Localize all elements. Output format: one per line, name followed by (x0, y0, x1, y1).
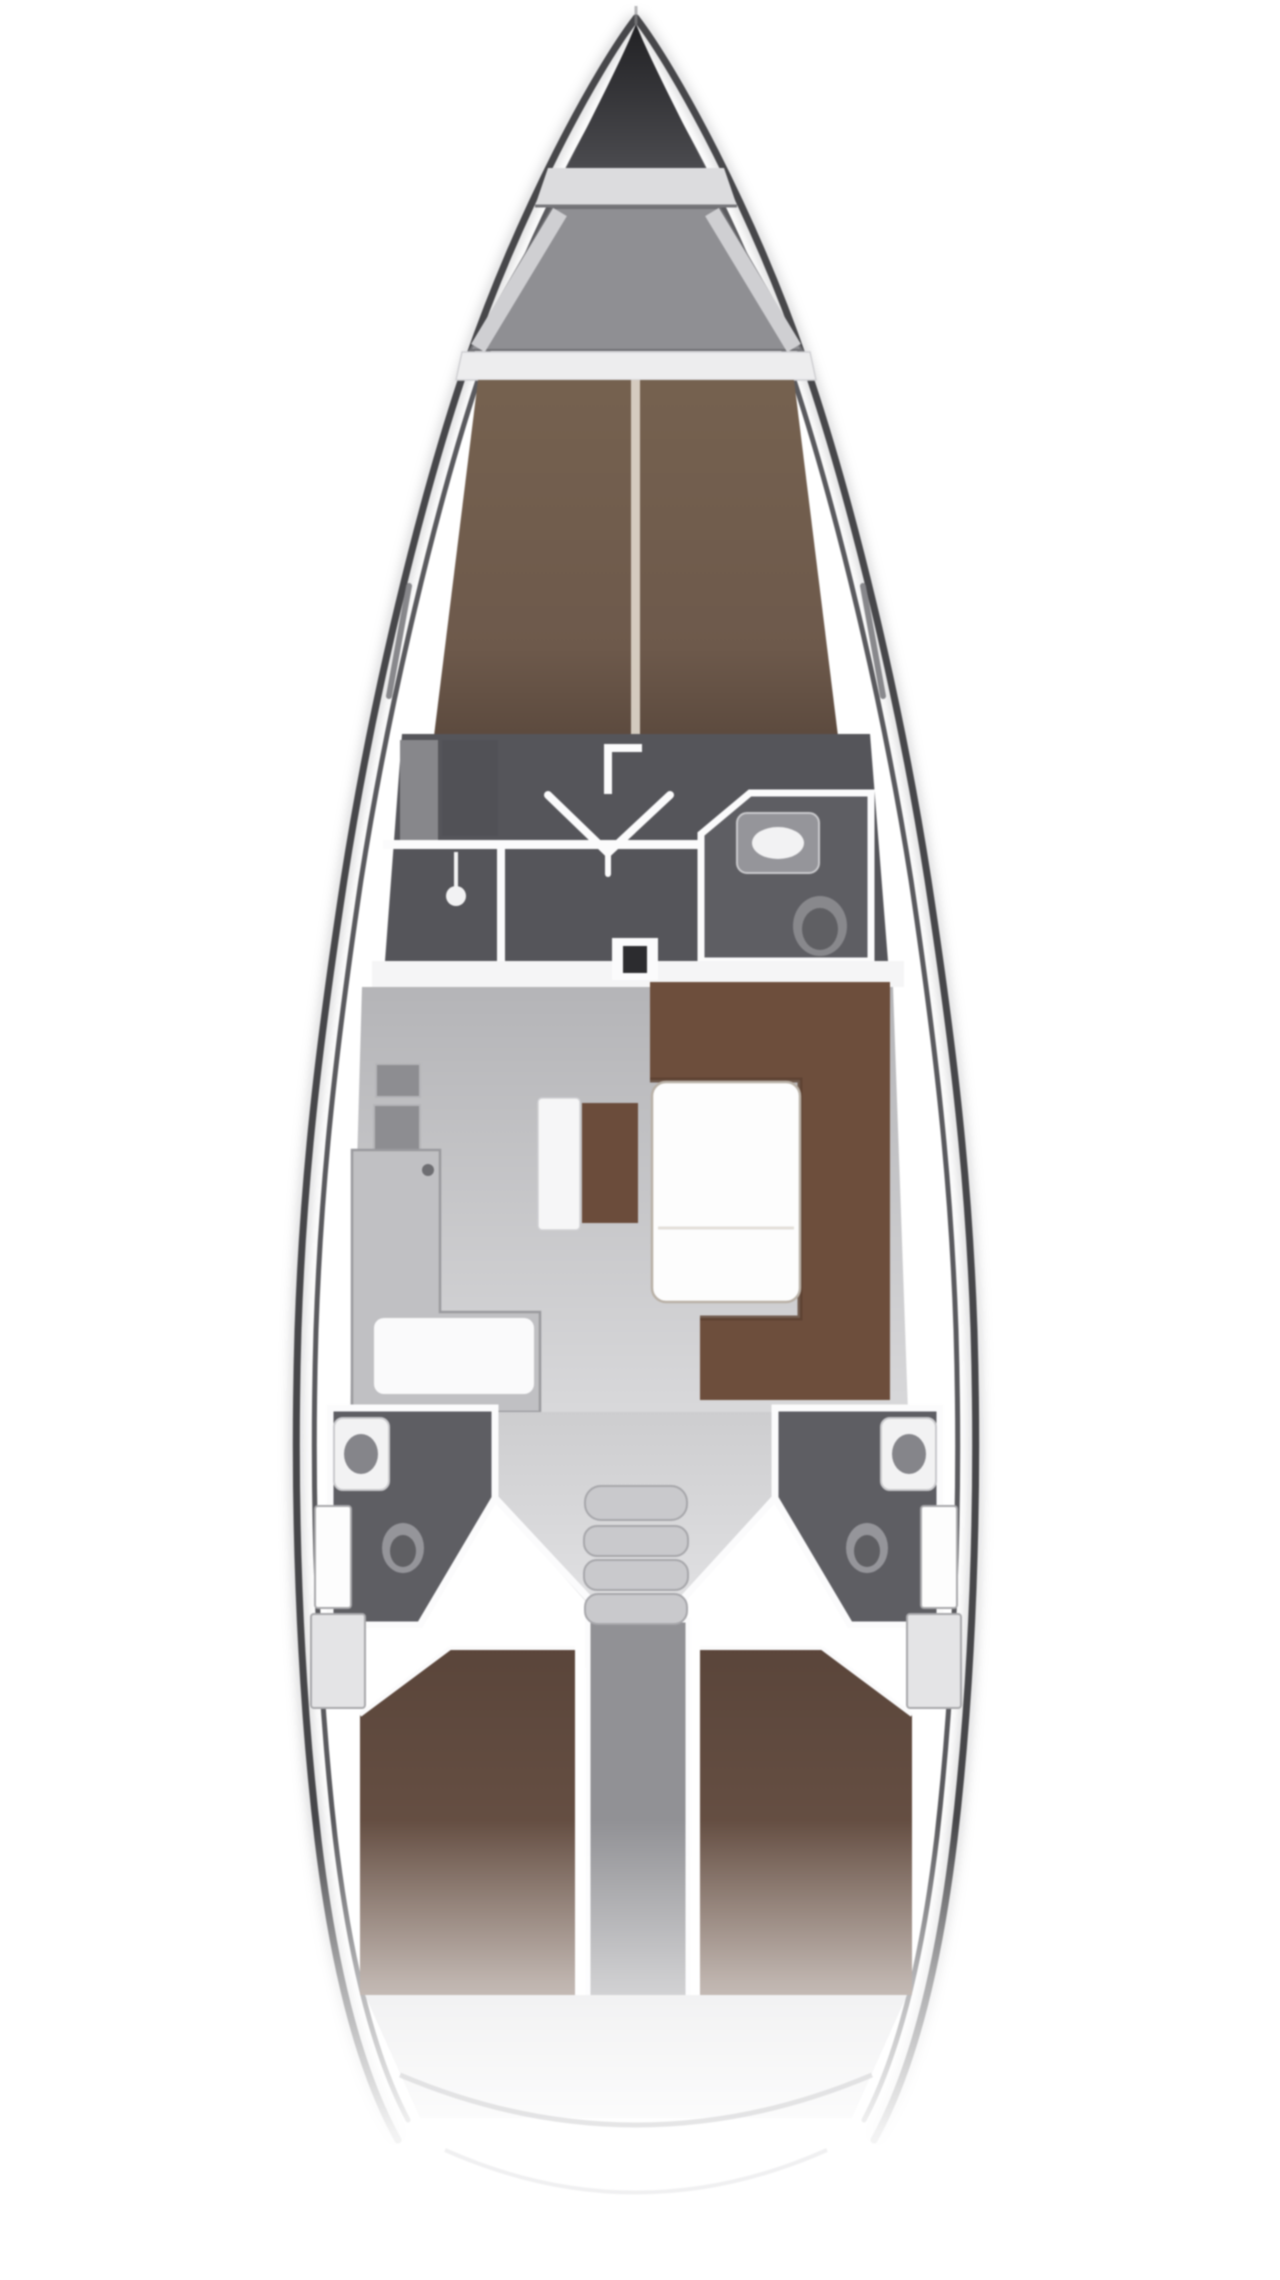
port-aft-head-toilet-bowl (390, 1535, 416, 1567)
starboard-aft-locker (907, 1614, 961, 1708)
port-hull-window-panel (315, 1506, 351, 1608)
shower-head-icon (446, 886, 466, 906)
forward-cabin-floor-zone (383, 734, 888, 963)
forward-cabin-v-berth (434, 380, 838, 736)
mast-post-icon (623, 946, 647, 973)
companionway-step (585, 1594, 687, 1624)
forward-head-toilet-bowl (802, 908, 838, 950)
companionway-step (584, 1560, 688, 1590)
midship-cross-wall (383, 840, 701, 849)
floor-plan-canvas (0, 0, 1280, 2280)
galley-faucet-icon (422, 1164, 434, 1176)
starboard-aft-head-sink-bowl-icon (892, 1434, 926, 1474)
port-aft-head-sink-bowl-icon (344, 1434, 378, 1474)
mast-step (612, 938, 658, 980)
bench-seat (538, 1098, 580, 1230)
port-aft-locker (311, 1614, 365, 1708)
shower-wall (497, 849, 505, 963)
forward-head-bathroom (701, 793, 871, 961)
port-locker-panel (400, 740, 438, 840)
starboard-hull-window-panel (921, 1506, 957, 1608)
centerline-bench (538, 1098, 638, 1230)
companionway-step (585, 1486, 687, 1520)
forward-head-sink-bowl-icon (752, 827, 804, 859)
salon-table-top (652, 1082, 800, 1302)
bow-bulkhead-band (535, 168, 737, 206)
wall-cabinet-upper (376, 1064, 420, 1097)
bench-backrest (582, 1103, 638, 1223)
cabin-door-frame-vertical (604, 752, 612, 794)
galley-worktop (374, 1318, 534, 1394)
forward-berth-pillow-band (456, 352, 816, 380)
forward-berth-centerline-seam (631, 380, 640, 736)
salon-table (652, 1082, 800, 1302)
companionway-step (584, 1526, 688, 1556)
wardrobe-front (442, 740, 498, 836)
stern-fade-overlay (220, 1820, 1060, 2280)
companionway-stairs (584, 1486, 688, 1624)
starboard-aft-head-toilet-bowl (854, 1535, 880, 1567)
cabin-door-frame-horizontal (604, 744, 642, 752)
yacht-floor-plan (0, 0, 1280, 2280)
bow-bulkhead (535, 168, 737, 206)
